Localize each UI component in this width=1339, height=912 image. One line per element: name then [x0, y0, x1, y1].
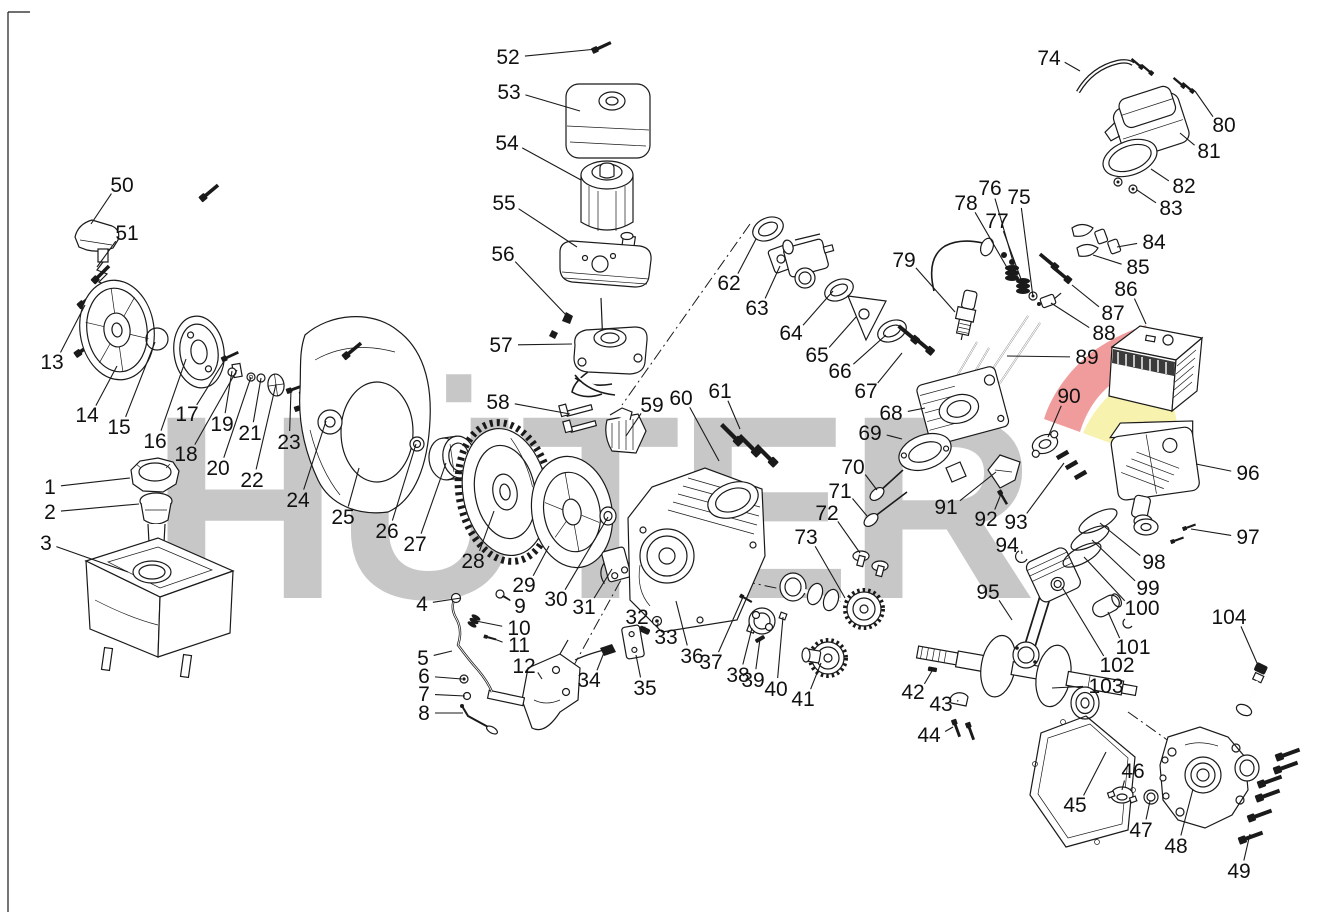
starter-cup [318, 410, 342, 434]
part-label-63: 63 [745, 297, 768, 320]
part-label-37: 37 [699, 651, 722, 674]
part-label-73: 73 [794, 526, 817, 549]
rocker-pivots [1094, 229, 1121, 255]
leader-line-56 [515, 262, 567, 316]
part-label-64: 64 [779, 322, 803, 345]
dowel-pins [1056, 450, 1088, 480]
part-label-12: 12 [512, 655, 535, 678]
part-label-3: 3 [40, 532, 52, 555]
part-label-44: 44 [917, 724, 941, 747]
part-label-104: 104 [1211, 606, 1246, 629]
part-label-31: 31 [572, 596, 595, 619]
part-label-76: 76 [978, 177, 1001, 200]
leader-line-57 [518, 344, 572, 345]
air-filter-base [560, 233, 651, 288]
leader-line-62 [738, 239, 756, 274]
rocker-arms [1072, 225, 1098, 257]
leader-line-86 [1134, 299, 1146, 324]
air-cleaner-housing [1109, 326, 1202, 411]
starter-housing [73, 275, 160, 384]
leader-line-50 [91, 194, 111, 224]
part-label-59: 59 [640, 394, 663, 417]
part-label-54: 54 [495, 132, 519, 155]
part-label-15: 15 [107, 416, 130, 439]
part-label-70: 70 [841, 456, 864, 479]
leader-line-55 [519, 209, 577, 247]
part-label-20: 20 [206, 457, 229, 480]
part-label-81: 81 [1197, 140, 1220, 163]
part-label-60: 60 [669, 387, 692, 410]
leader-line-104 [1241, 626, 1257, 663]
part-label-23: 23 [277, 431, 300, 454]
part-label-26: 26 [375, 520, 398, 543]
exhaust-gasket [1027, 430, 1063, 458]
oil-drain-plug [1235, 662, 1268, 718]
cover-gasket-45 [1030, 716, 1136, 847]
part-label-92: 92 [974, 508, 997, 531]
part-label-71: 71 [828, 480, 851, 503]
leader-line-102 [1062, 587, 1104, 656]
leader-line-84 [1117, 243, 1137, 247]
part-label-28: 28 [461, 550, 484, 573]
leader-line-65 [829, 317, 856, 347]
leader-line-83 [1137, 190, 1156, 203]
carburetor [781, 234, 833, 288]
part-label-45: 45 [1063, 794, 1086, 817]
air-filter-cover [566, 84, 650, 158]
part-label-95: 95 [976, 581, 999, 604]
part-label-89: 89 [1075, 346, 1098, 369]
o-ring [1144, 790, 1158, 804]
leader-line-64 [803, 291, 833, 325]
part-label-21: 21 [238, 422, 261, 445]
flywheel-nut [410, 437, 424, 451]
part-label-96: 96 [1236, 462, 1259, 485]
crank-key [928, 666, 938, 672]
leader-line-100 [1084, 557, 1125, 601]
grommet [562, 312, 573, 324]
leader-line-52 [525, 49, 597, 56]
leader-line-82 [1151, 169, 1169, 181]
part-label-100: 100 [1124, 597, 1159, 620]
part-label-51: 51 [115, 222, 138, 245]
leader-line-89 [1007, 356, 1070, 357]
leader-line-96 [1196, 464, 1231, 471]
part-label-80: 80 [1212, 114, 1235, 137]
part-label-2: 2 [44, 501, 56, 524]
part-label-69: 69 [858, 422, 881, 445]
part-label-83: 83 [1159, 197, 1182, 220]
spark-plug [951, 289, 979, 342]
part-label-57: 57 [489, 334, 512, 357]
part-label-22: 22 [240, 469, 263, 492]
part-label-93: 93 [1004, 511, 1027, 534]
part-label-68: 68 [879, 402, 902, 425]
part-label-58: 58 [486, 391, 509, 414]
part-label-56: 56 [491, 243, 514, 266]
part-label-25: 25 [331, 506, 354, 529]
leader-line-44 [945, 727, 953, 732]
leader-line-87 [1072, 285, 1099, 307]
leader-line-97 [1191, 529, 1231, 535]
part-label-50: 50 [110, 174, 133, 197]
part-label-79: 79 [892, 249, 915, 272]
fan-washer [600, 507, 616, 525]
part-label-24: 24 [286, 489, 310, 512]
ball-bearing [780, 573, 806, 601]
part-label-13: 13 [40, 351, 63, 374]
part-label-75: 75 [1007, 186, 1030, 209]
part-label-97: 97 [1236, 526, 1259, 549]
part-label-90: 90 [1057, 385, 1080, 408]
part-label-85: 85 [1126, 256, 1149, 279]
leader-line-85 [1093, 255, 1122, 264]
part-label-48: 48 [1164, 835, 1187, 858]
choke-lever [1040, 294, 1057, 308]
part-label-84: 84 [1142, 231, 1166, 254]
leader-line-2 [61, 504, 139, 511]
muffler [1108, 413, 1202, 501]
part-label-1: 1 [44, 476, 56, 499]
leader-line-74 [1065, 62, 1080, 71]
piston [1024, 546, 1082, 604]
leader-line-63 [765, 266, 780, 298]
part-label-43: 43 [929, 693, 952, 716]
part-label-19: 19 [210, 413, 233, 436]
part-label-91: 91 [934, 496, 957, 519]
part-label-52: 52 [496, 46, 519, 69]
part-label-40: 40 [764, 678, 787, 701]
woodruff-key [950, 693, 968, 706]
leader-line-7 [435, 695, 465, 696]
part-label-32: 32 [625, 606, 648, 629]
part-label-47: 47 [1129, 819, 1152, 842]
cover-bearing [1235, 755, 1259, 781]
part-label-88: 88 [1092, 322, 1115, 345]
part-label-53: 53 [497, 81, 520, 104]
part-label-55: 55 [492, 192, 515, 215]
part-label-9: 9 [514, 595, 526, 618]
part-label-29: 29 [512, 574, 535, 597]
part-label-86: 86 [1114, 278, 1137, 301]
part-label-14: 14 [75, 404, 99, 427]
part-label-27: 27 [403, 533, 426, 556]
leader-line-77 [1003, 231, 1025, 290]
part-label-66: 66 [828, 360, 851, 383]
leader-line-42 [924, 671, 932, 684]
part-label-39: 39 [741, 669, 764, 692]
leader-line-80 [1195, 91, 1213, 117]
part-label-42: 42 [901, 681, 924, 704]
recoil-starter-group [73, 182, 318, 412]
part-label-11: 11 [508, 634, 530, 657]
part-label-98: 98 [1142, 551, 1165, 574]
part-label-33: 33 [654, 626, 677, 649]
piston-pin [1090, 591, 1124, 619]
leader-line-6 [435, 677, 462, 679]
part-label-74: 74 [1037, 47, 1061, 70]
part-label-72: 72 [815, 502, 838, 525]
part-label-94: 94 [995, 534, 1019, 557]
part-label-61: 61 [708, 380, 731, 403]
part-label-4: 4 [416, 593, 428, 616]
part-label-62: 62 [717, 272, 740, 295]
leader-line-35 [636, 655, 641, 677]
leader-line-66 [853, 335, 886, 364]
part-label-67: 67 [854, 380, 877, 403]
leader-line-45 [1084, 752, 1106, 796]
plug-wire [932, 241, 983, 291]
part-label-82: 82 [1172, 175, 1195, 198]
part-label-78: 78 [954, 192, 977, 215]
part-label-41: 41 [791, 688, 814, 711]
part-label-46: 46 [1121, 760, 1144, 783]
air-filter-element [581, 161, 633, 231]
part-label-35: 35 [633, 677, 656, 700]
part-label-102: 102 [1099, 654, 1134, 677]
part-label-30: 30 [544, 588, 567, 611]
part-label-17: 17 [175, 403, 198, 426]
part-label-8: 8 [418, 702, 430, 725]
air-filter-group [549, 40, 651, 397]
part-label-49: 49 [1227, 860, 1250, 883]
crankcase-cover-group [1030, 662, 1301, 847]
page-frame [8, 12, 30, 912]
part-label-16: 16 [143, 430, 166, 453]
rocker-cover-group [1072, 57, 1195, 256]
part-label-18: 18 [174, 443, 197, 466]
exploded-parts-diagram: HÜTER [0, 0, 1339, 912]
part-label-77: 77 [985, 210, 1008, 233]
carburetor-group [749, 212, 936, 356]
leader-line-1 [61, 478, 130, 486]
diagram-canvas: HÜTER [0, 0, 1339, 912]
part-label-103: 103 [1088, 675, 1123, 698]
crankcase-cover [1160, 727, 1248, 828]
leader-line-101 [1108, 612, 1120, 638]
part-label-34: 34 [577, 669, 601, 692]
leader-line-88 [1051, 303, 1089, 328]
part-label-65: 65 [805, 344, 828, 367]
